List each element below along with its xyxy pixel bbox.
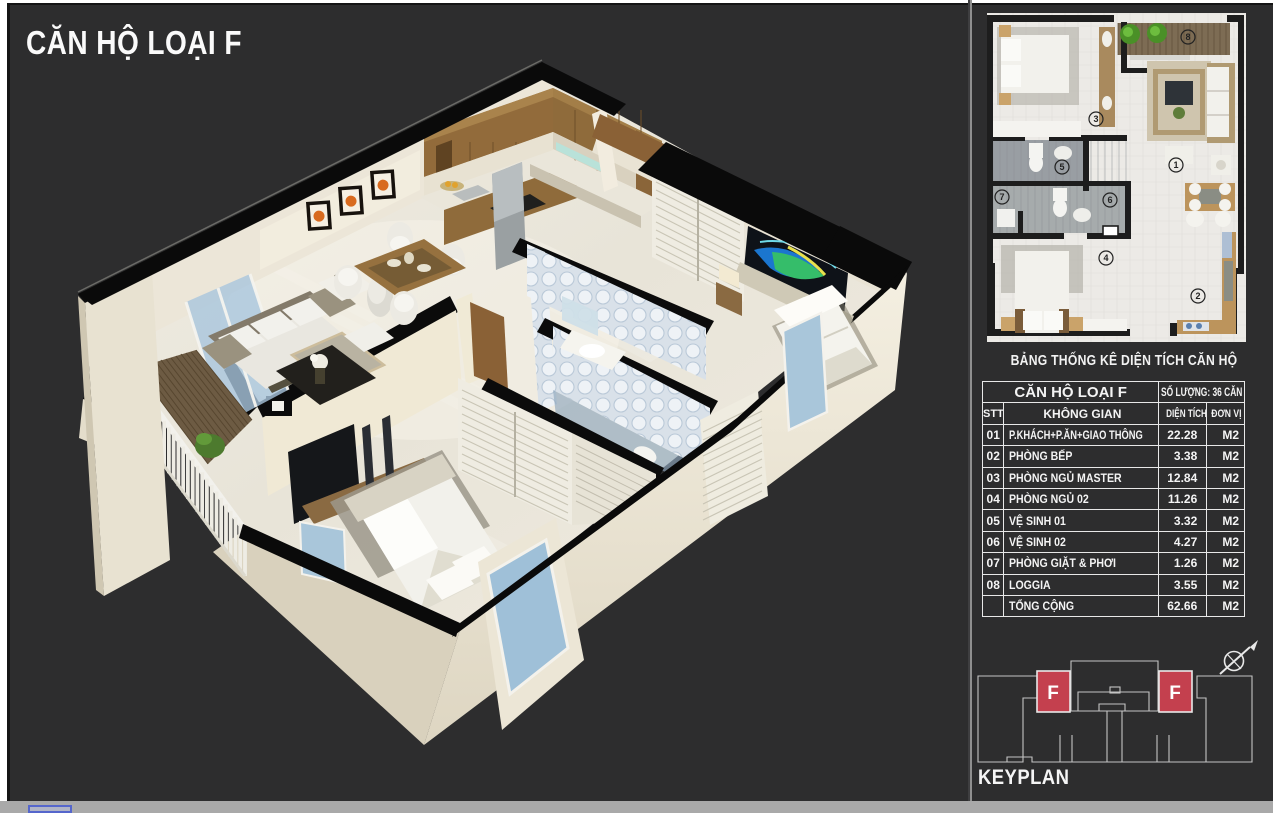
- svg-text:5: 5: [1059, 162, 1064, 172]
- svg-text:7: 7: [999, 192, 1004, 202]
- svg-text:2: 2: [1195, 291, 1200, 301]
- svg-text:4: 4: [1103, 253, 1108, 263]
- svg-text:8: 8: [1185, 32, 1190, 42]
- svg-text:3: 3: [1093, 114, 1098, 124]
- svg-text:F: F: [1047, 683, 1059, 704]
- svg-text:F: F: [1169, 683, 1181, 704]
- svg-text:1: 1: [1173, 160, 1178, 170]
- svg-text:6: 6: [1107, 195, 1112, 205]
